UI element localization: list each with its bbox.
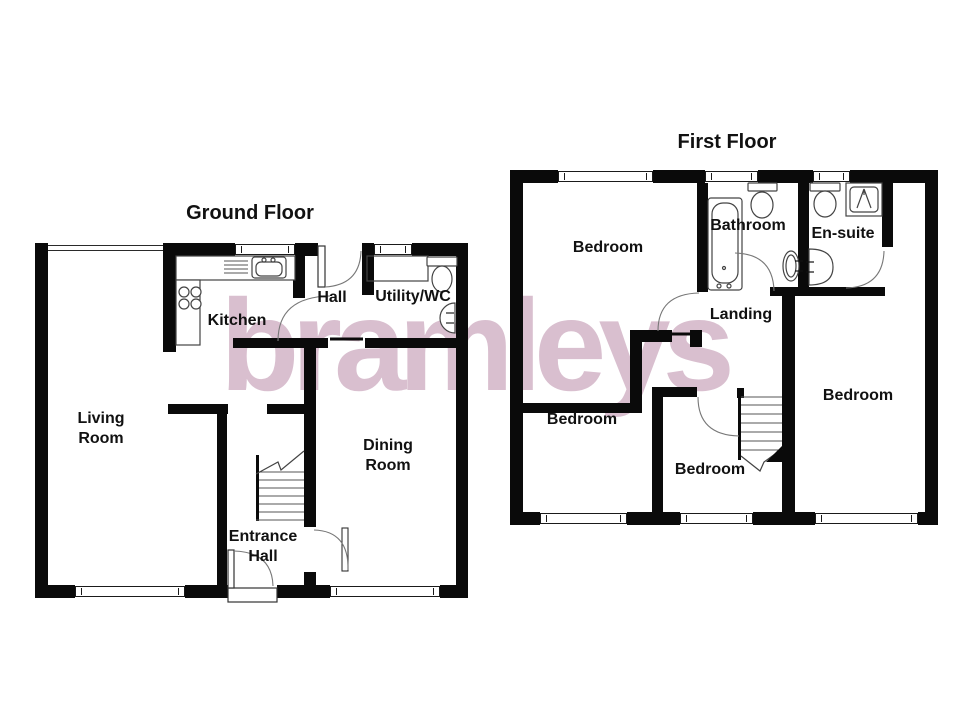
bathroom-door bbox=[735, 253, 774, 291]
first-floor-title: First Floor bbox=[678, 131, 777, 154]
wall bbox=[652, 390, 663, 517]
window-tick bbox=[81, 588, 82, 595]
wall bbox=[782, 287, 795, 517]
wall bbox=[304, 572, 316, 586]
ensuite-door bbox=[846, 251, 884, 288]
wall bbox=[510, 170, 523, 525]
window-tick bbox=[546, 515, 547, 522]
window-tick bbox=[711, 173, 712, 180]
wall bbox=[737, 388, 744, 398]
wall bbox=[798, 183, 809, 288]
room-label-bedroom-middle: Bedroom bbox=[675, 460, 745, 480]
kitchen-hob bbox=[179, 287, 201, 309]
shower bbox=[846, 183, 882, 216]
window bbox=[48, 245, 163, 251]
room-label-landing: Landing bbox=[710, 305, 772, 325]
room-label-bedroom-left: Bedroom bbox=[547, 410, 617, 430]
wall bbox=[653, 170, 705, 183]
window-tick bbox=[336, 588, 337, 595]
room-label-bedroom-front: Bedroom bbox=[573, 238, 643, 258]
window bbox=[374, 244, 412, 255]
window bbox=[235, 244, 295, 255]
wall bbox=[510, 170, 558, 183]
window-tick bbox=[746, 515, 747, 522]
bathroom-toilet bbox=[748, 183, 777, 218]
window-tick bbox=[646, 173, 647, 180]
window-tick bbox=[911, 515, 912, 522]
window bbox=[813, 171, 850, 182]
window-tick bbox=[821, 515, 822, 522]
wall bbox=[304, 343, 316, 527]
wall bbox=[365, 338, 468, 348]
wall bbox=[925, 170, 938, 525]
room-label-utility-wc: Utility/WC bbox=[375, 287, 451, 307]
wall bbox=[510, 512, 540, 525]
wall bbox=[850, 170, 938, 183]
window-tick bbox=[819, 173, 820, 180]
wall bbox=[690, 330, 702, 347]
wall bbox=[697, 183, 708, 292]
wall bbox=[440, 585, 468, 598]
window-tick bbox=[178, 588, 179, 595]
window bbox=[558, 171, 653, 182]
floorplan-canvas: bramleys bbox=[0, 0, 980, 712]
window-tick bbox=[843, 173, 844, 180]
wall bbox=[163, 243, 235, 256]
wall bbox=[758, 170, 813, 183]
room-label-kitchen: Kitchen bbox=[208, 311, 267, 331]
wall bbox=[412, 243, 468, 256]
wall bbox=[362, 243, 374, 256]
wall bbox=[277, 585, 330, 598]
room-label-dining-room: Dining Room bbox=[356, 436, 420, 476]
wall bbox=[168, 404, 228, 414]
window bbox=[815, 513, 918, 524]
wall bbox=[456, 243, 468, 598]
window bbox=[680, 513, 753, 524]
wall bbox=[35, 243, 48, 598]
window-tick bbox=[433, 588, 434, 595]
wall bbox=[217, 408, 227, 598]
window bbox=[705, 171, 758, 182]
room-label-en-suite: En-suite bbox=[811, 224, 874, 244]
wall bbox=[362, 256, 374, 295]
window-tick bbox=[564, 173, 565, 180]
window-tick bbox=[686, 515, 687, 522]
room-label-bedroom-right: Bedroom bbox=[823, 386, 893, 406]
wall bbox=[267, 404, 316, 414]
ensuite-toilet bbox=[810, 183, 840, 217]
wall bbox=[882, 183, 893, 247]
room-label-hall: Hall bbox=[317, 288, 346, 308]
window-tick bbox=[620, 515, 621, 522]
wall bbox=[652, 387, 697, 397]
wall bbox=[35, 243, 48, 256]
wall bbox=[295, 243, 318, 256]
room-label-bathroom: Bathroom bbox=[710, 216, 786, 236]
window bbox=[330, 586, 440, 597]
ground-floor-title: Ground Floor bbox=[186, 202, 314, 225]
room-label-living-room: Living Room bbox=[69, 409, 133, 449]
dining-door bbox=[314, 528, 348, 571]
window-tick bbox=[380, 246, 381, 253]
wall bbox=[35, 585, 75, 598]
window bbox=[75, 586, 185, 597]
window-tick bbox=[288, 246, 289, 253]
window bbox=[540, 513, 627, 524]
window-tick bbox=[241, 246, 242, 253]
wall bbox=[293, 256, 305, 298]
room-label-entrance-hall: Entrance Hall bbox=[218, 527, 308, 567]
ensuite-basin bbox=[806, 249, 833, 285]
window-tick bbox=[405, 246, 406, 253]
window-tick bbox=[751, 173, 752, 180]
gf-staircase bbox=[256, 451, 304, 521]
wall bbox=[918, 512, 938, 525]
wall bbox=[630, 330, 642, 413]
wall bbox=[163, 256, 176, 352]
